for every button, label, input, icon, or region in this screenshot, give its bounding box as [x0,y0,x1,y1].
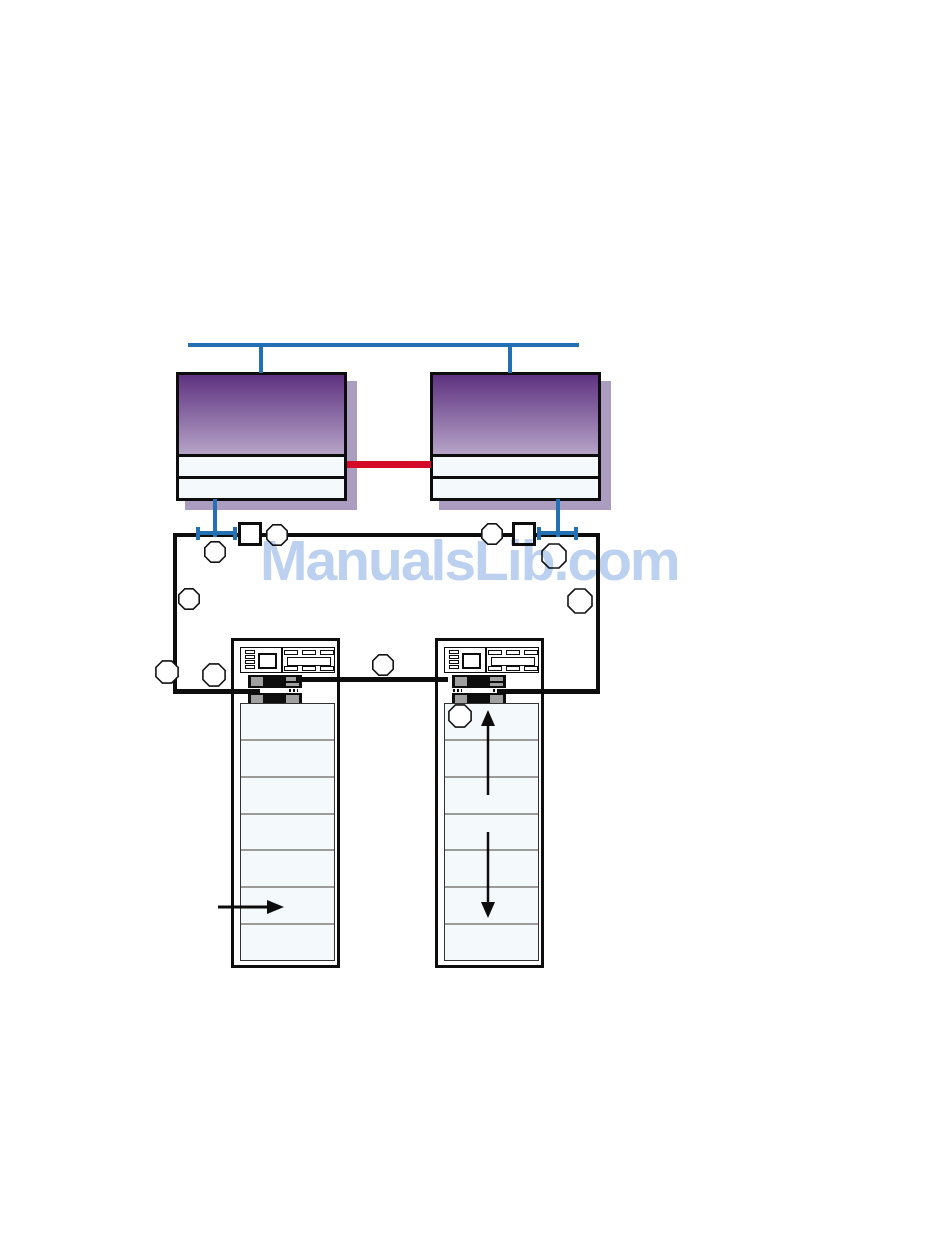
diagram-canvas: ManualsLib.com [0,0,950,1237]
rack-shelves [240,703,335,961]
manualslib-watermark: ManualsLib.com [260,531,679,591]
rack-shelf [445,849,538,886]
server-left-bay-1 [179,454,344,476]
panel-button [302,650,316,655]
tick-marks [289,689,298,692]
panel-led [245,665,255,669]
rack-shelf [241,813,334,850]
panel-divider [281,648,283,672]
rack-shelf [241,776,334,813]
module-port [490,683,503,686]
io-module-a [452,675,506,688]
panel-readout [491,657,535,666]
rack-shelf [445,813,538,850]
panel-button [506,650,520,655]
rack-control-panel [240,647,335,673]
rack-shelf [241,704,334,739]
io-module-a [248,675,302,688]
panel-button [284,666,298,671]
panel-readout [287,657,331,666]
storage-rack-right [435,638,544,968]
rack-shelves [444,703,539,961]
rack-shelf [241,886,334,923]
module-port [286,683,299,686]
network-drop-right [508,343,512,373]
panel-led [245,660,255,664]
rack-shelf [445,923,538,960]
enclosure-cable-left [173,689,260,694]
bus-tap-left-cap-b [233,527,237,540]
panel-led [449,650,459,654]
panel-led [245,655,255,659]
rack-shelf [445,704,538,739]
server-node-left [176,372,347,501]
rack-shelf [241,849,334,886]
network-bus-line [188,343,579,347]
server-right-bay-1 [433,454,598,476]
panel-button [320,650,334,655]
storage-rack-left [231,638,340,968]
server-left-bay-2 [179,476,344,498]
panel-button [524,666,538,671]
server-left-bezel [179,375,344,454]
module-connector [251,677,263,686]
panel-button [320,666,334,671]
module-connector [455,677,467,686]
port-square-left [238,522,262,546]
panel-led [449,655,459,659]
rack-control-panel [444,647,539,673]
bus-tap-left [198,531,235,535]
panel-button [488,666,502,671]
panel-led [245,650,255,654]
bus-tap-left-cap-a [196,527,200,540]
panel-display [258,653,277,669]
cluster-interconnect-cable [347,461,431,468]
panel-button [524,650,538,655]
panel-button [488,650,502,655]
enclosure-cable-right [497,689,600,694]
panel-button [302,666,316,671]
panel-button [506,666,520,671]
network-drop-left [259,343,263,373]
panel-led [449,665,459,669]
rack-shelf [445,886,538,923]
panel-display [462,653,481,669]
module-port [490,677,503,681]
rack-shelf [241,739,334,776]
server-right-bezel [433,375,598,454]
server-node-right [430,372,601,501]
panel-button [284,650,298,655]
panel-divider [485,648,487,672]
rack-shelf [445,739,538,776]
module-interconnect-cable [296,677,448,682]
server-right-bay-2 [433,476,598,498]
rack-shelf [241,923,334,960]
tick-marks [453,689,462,692]
panel-led [449,660,459,664]
rack-shelf [445,776,538,813]
